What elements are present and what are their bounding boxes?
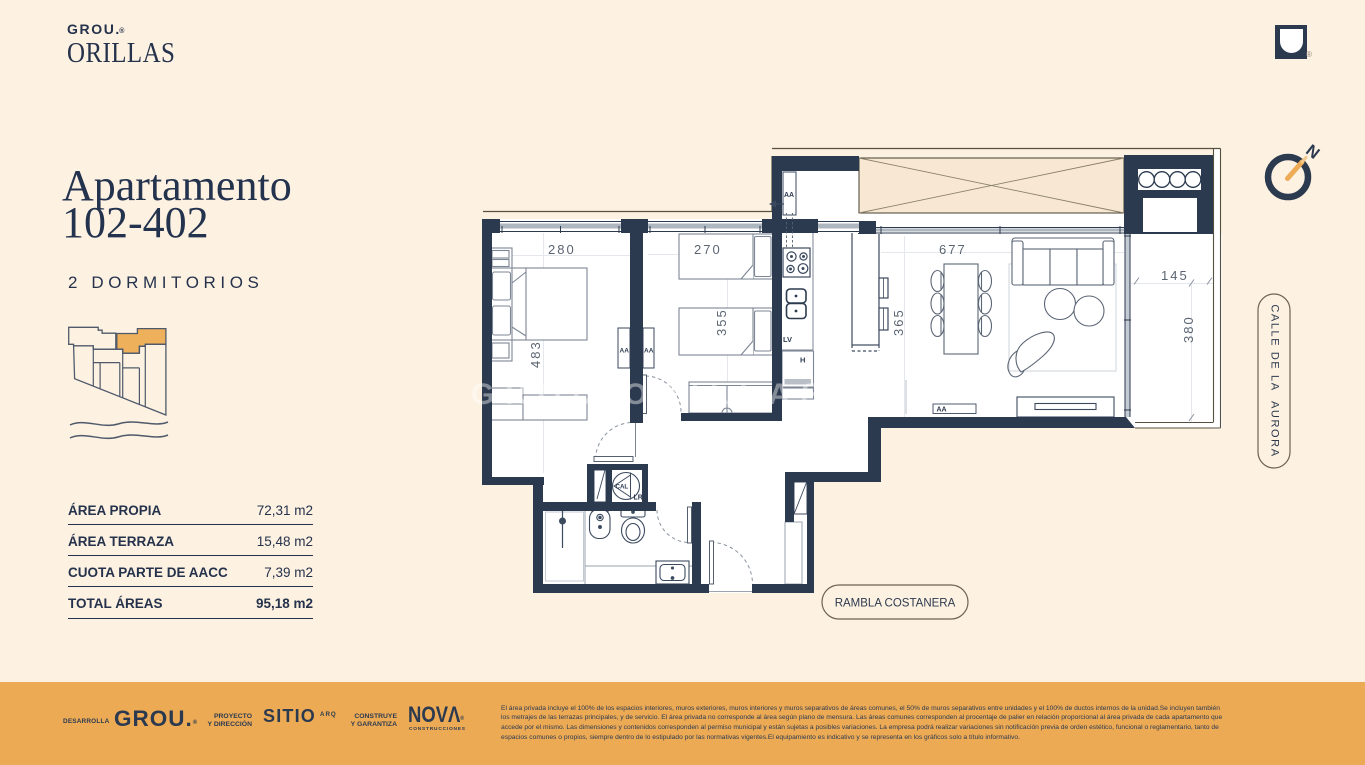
svg-text:145: 145 [1161,268,1189,283]
svg-text:365: 365 [891,308,906,336]
svg-text:CALLE DE LA AURORA: CALLE DE LA AURORA [1269,304,1281,457]
svg-text:AA: AA [784,192,794,199]
svg-text:270: 270 [694,242,722,257]
svg-text:280: 280 [548,242,576,257]
svg-text:H: H [800,356,805,365]
svg-text:GROU.ORILLAS: GROU.ORILLAS [471,378,821,411]
svg-text:LR: LR [634,495,643,502]
svg-text:LV: LV [783,335,792,344]
svg-text:483: 483 [528,340,543,368]
svg-text:677: 677 [939,242,967,257]
svg-text:AA: AA [620,348,630,355]
svg-text:RAMBLA COSTANERA: RAMBLA COSTANERA [835,598,956,610]
svg-text:CAL: CAL [616,484,629,491]
svg-text:380: 380 [1181,315,1196,343]
svg-text:AA: AA [937,407,947,414]
svg-text:355: 355 [714,308,729,336]
svg-text:AA: AA [644,348,654,355]
